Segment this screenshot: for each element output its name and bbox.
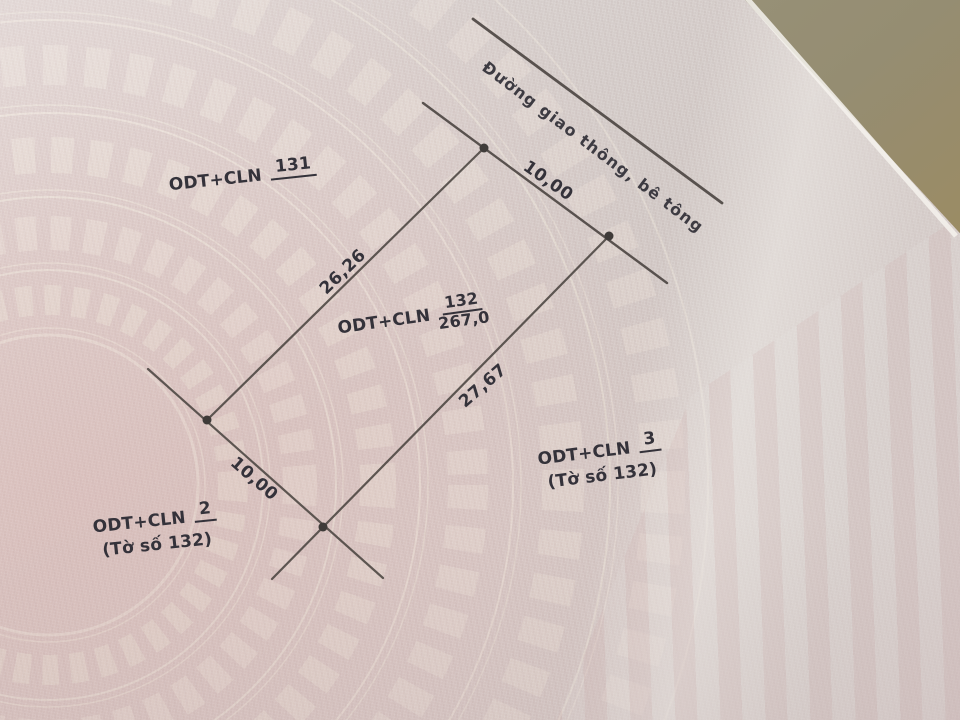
road-outer-line — [473, 19, 722, 203]
parcel-131-number: 131 — [269, 153, 317, 181]
boundary-vertex — [203, 416, 212, 425]
boundary-vertex — [319, 523, 328, 532]
parcel-132-number-area: 132267,0 — [435, 289, 491, 332]
page-corner-edge — [745, 0, 956, 236]
land-certificate-photo: Đường giao thông, bê tông 10,00 ODT+CLN1… — [0, 0, 960, 720]
boundary-vertex — [605, 232, 614, 241]
parcel-3-number: 3 — [637, 428, 662, 454]
boundary-vertex — [480, 144, 489, 153]
parcel-boundary-lines — [0, 0, 960, 720]
parcel-2-number: 2 — [193, 498, 217, 523]
road-inner-frontage-line — [423, 103, 667, 283]
parcel-132-code: ODT+CLN — [336, 306, 431, 339]
